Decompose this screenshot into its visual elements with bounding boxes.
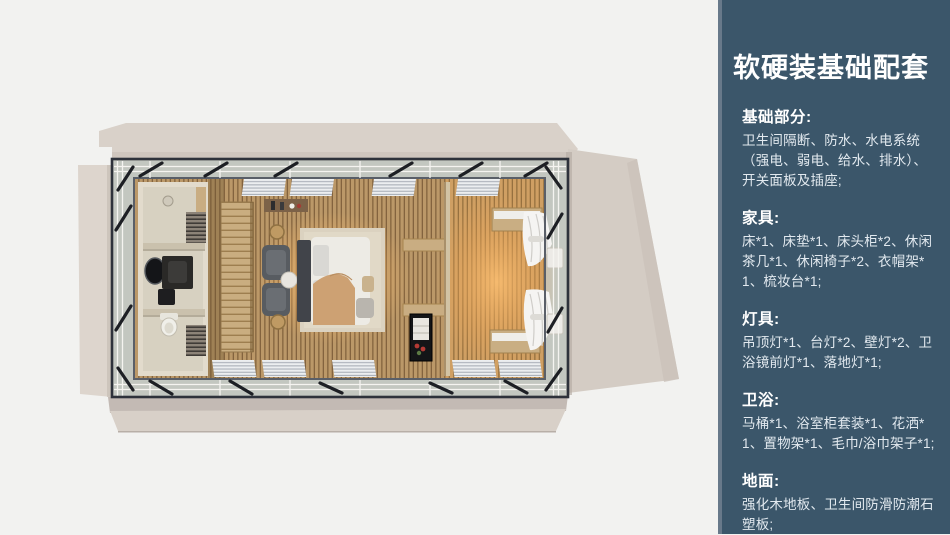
bathroom xyxy=(138,182,208,376)
section-furniture: 家具: 床*1、床垫*1、床头柜*2、休闲茶几*1、休闲椅子*2、衣帽架*1、梳… xyxy=(742,206,936,292)
shower-drain xyxy=(163,196,173,206)
section-floor: 地面: 强化木地板、卫生间防滑防潮石塑板; xyxy=(742,469,936,535)
pillow xyxy=(313,245,329,276)
section-furniture-body: 床*1、床垫*1、床头柜*2、休闲茶几*1、休闲椅子*2、衣帽架*1、梳妆台*1… xyxy=(742,232,936,292)
foot-cushion xyxy=(356,298,374,318)
headboard xyxy=(297,240,311,322)
section-basics-heading: 基础部分: xyxy=(742,105,936,127)
basket xyxy=(270,225,284,239)
section-lighting-heading: 灯具: xyxy=(742,307,936,329)
section-furniture-heading: 家具: xyxy=(742,206,936,228)
basket xyxy=(271,315,285,329)
shelf-above-bed xyxy=(264,199,308,212)
section-basics: 基础部分: 卫生间隔断、防水、水电系统（强电、弱电、给水、排水）、开关面板及插座… xyxy=(742,105,936,191)
toilet xyxy=(160,313,178,336)
slide: 软硬装基础配套 基础部分: 卫生间隔断、防水、水电系统（强电、弱电、给水、排水）… xyxy=(0,0,950,534)
panel-accent-strip xyxy=(718,0,722,534)
coffee-table xyxy=(281,272,297,288)
floorplan-svg xyxy=(0,0,718,534)
display-cabinet xyxy=(410,314,432,361)
towel-rack xyxy=(186,212,206,243)
info-panel: 软硬装基础配套 基础部分: 卫生间隔断、防水、水电系统（强电、弱电、给水、排水）… xyxy=(718,0,950,534)
wardrobe xyxy=(221,202,254,352)
section-bathroom-heading: 卫浴: xyxy=(742,388,936,410)
section-lighting: 灯具: 吊顶灯*1、台灯*2、壁灯*2、卫浴镜前灯*1、落地灯*1; xyxy=(742,307,936,373)
section-bathroom-body: 马桶*1、浴室柜套装*1、花洒*1、置物架*1、毛巾/浴巾架子*1; xyxy=(742,414,936,454)
pouf xyxy=(362,276,374,292)
vanity-stool xyxy=(158,289,175,305)
floorplan-render xyxy=(0,0,718,534)
section-lighting-body: 吊顶灯*1、台灯*2、壁灯*2、卫浴镜前灯*1、落地灯*1; xyxy=(742,333,936,373)
towel-rack xyxy=(186,325,206,356)
partition-wall xyxy=(444,182,450,376)
section-floor-heading: 地面: xyxy=(742,469,936,491)
section-bathroom: 卫浴: 马桶*1、浴室柜套装*1、花洒*1、置物架*1、毛巾/浴巾架子*1; xyxy=(742,388,936,454)
section-basics-body: 卫生间隔断、防水、水电系统（强电、弱电、给水、排水）、开关面板及插座; xyxy=(742,131,936,191)
duvet-throw xyxy=(313,274,355,325)
panel-title: 软硬装基础配套 xyxy=(733,46,936,85)
section-floor-body: 强化木地板、卫生间防滑防潮石塑板; xyxy=(742,495,936,535)
